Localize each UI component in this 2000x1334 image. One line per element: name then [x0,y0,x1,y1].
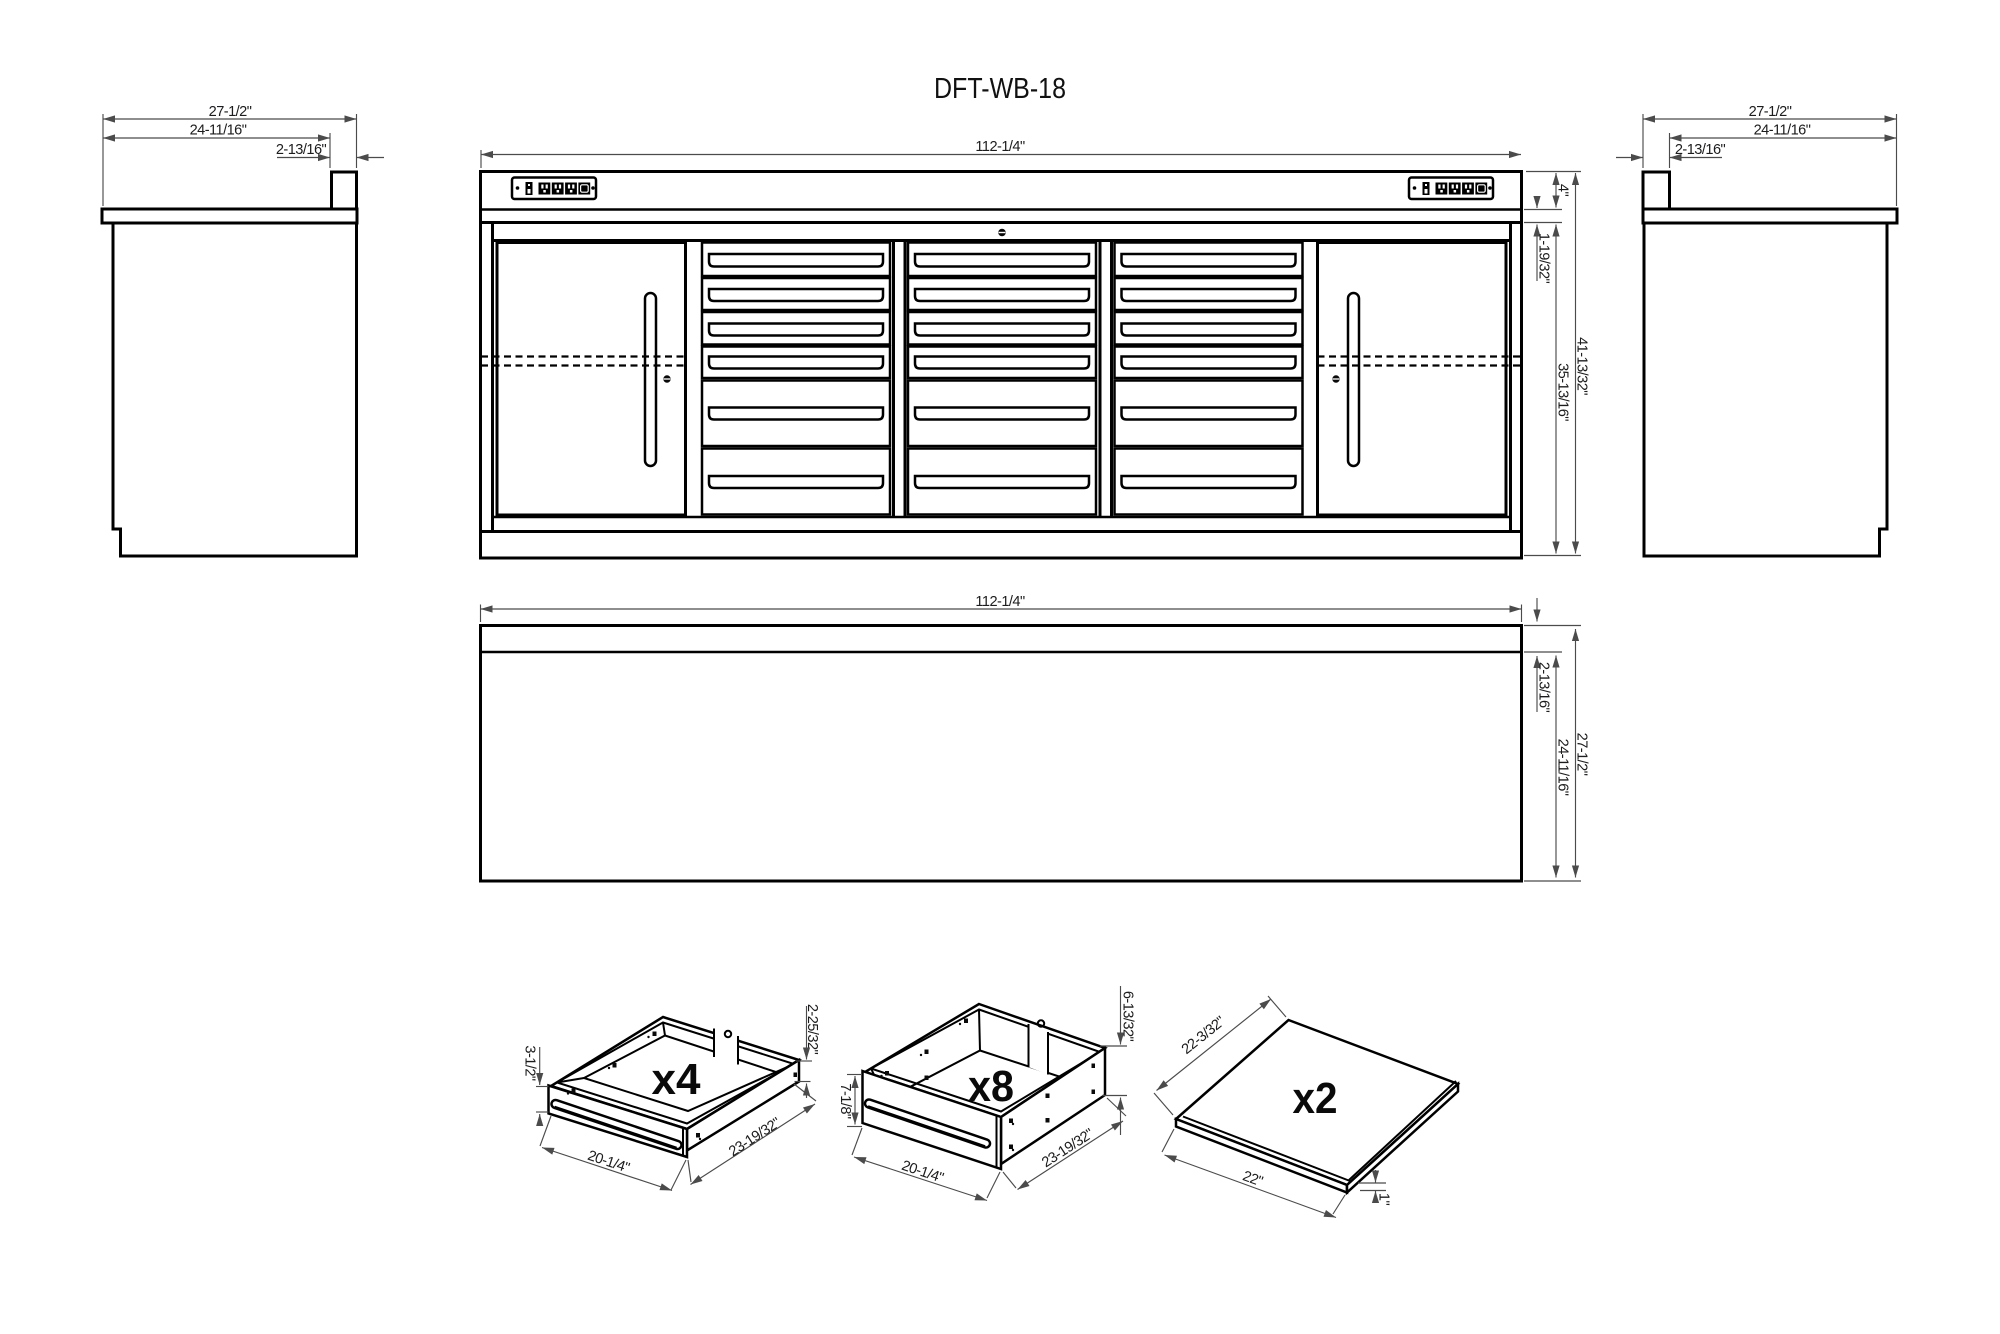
svg-text:DFT-WB-18: DFT-WB-18 [934,73,1066,105]
svg-text:1": 1" [1376,1193,1392,1206]
svg-text:x4: x4 [652,1055,701,1104]
svg-text:27-1/2": 27-1/2" [209,104,252,120]
svg-text:24-11/16": 24-11/16" [1754,123,1811,139]
svg-text:27-1/2": 27-1/2" [1749,104,1792,120]
svg-text:2-13/16": 2-13/16" [1536,662,1552,713]
svg-text:7-1/8": 7-1/8" [837,1083,853,1119]
svg-text:20-1/4": 20-1/4" [585,1148,631,1177]
svg-text:27-1/2": 27-1/2" [1574,733,1590,776]
svg-text:3-1/2": 3-1/2" [522,1045,538,1081]
svg-text:22-3/32": 22-3/32" [1179,1014,1229,1058]
svg-text:x2: x2 [1293,1074,1338,1123]
svg-text:x8: x8 [968,1062,1014,1111]
svg-text:2-13/16": 2-13/16" [1675,142,1726,158]
svg-text:20-1/4": 20-1/4" [899,1158,945,1187]
svg-text:24-11/16": 24-11/16" [190,123,247,139]
svg-text:1-19/32": 1-19/32" [1536,233,1552,284]
svg-text:112-1/4": 112-1/4" [975,139,1025,155]
svg-text:35-13/16": 35-13/16" [1555,363,1571,421]
svg-text:2-13/16": 2-13/16" [276,142,327,158]
svg-text:4": 4" [1555,184,1571,197]
svg-text:22": 22" [1240,1168,1264,1190]
svg-text:112-1/4": 112-1/4" [975,594,1025,610]
svg-text:41-13/32": 41-13/32" [1574,337,1590,395]
svg-text:24-11/16": 24-11/16" [1555,739,1571,796]
svg-text:6-13/32": 6-13/32" [1120,991,1136,1042]
